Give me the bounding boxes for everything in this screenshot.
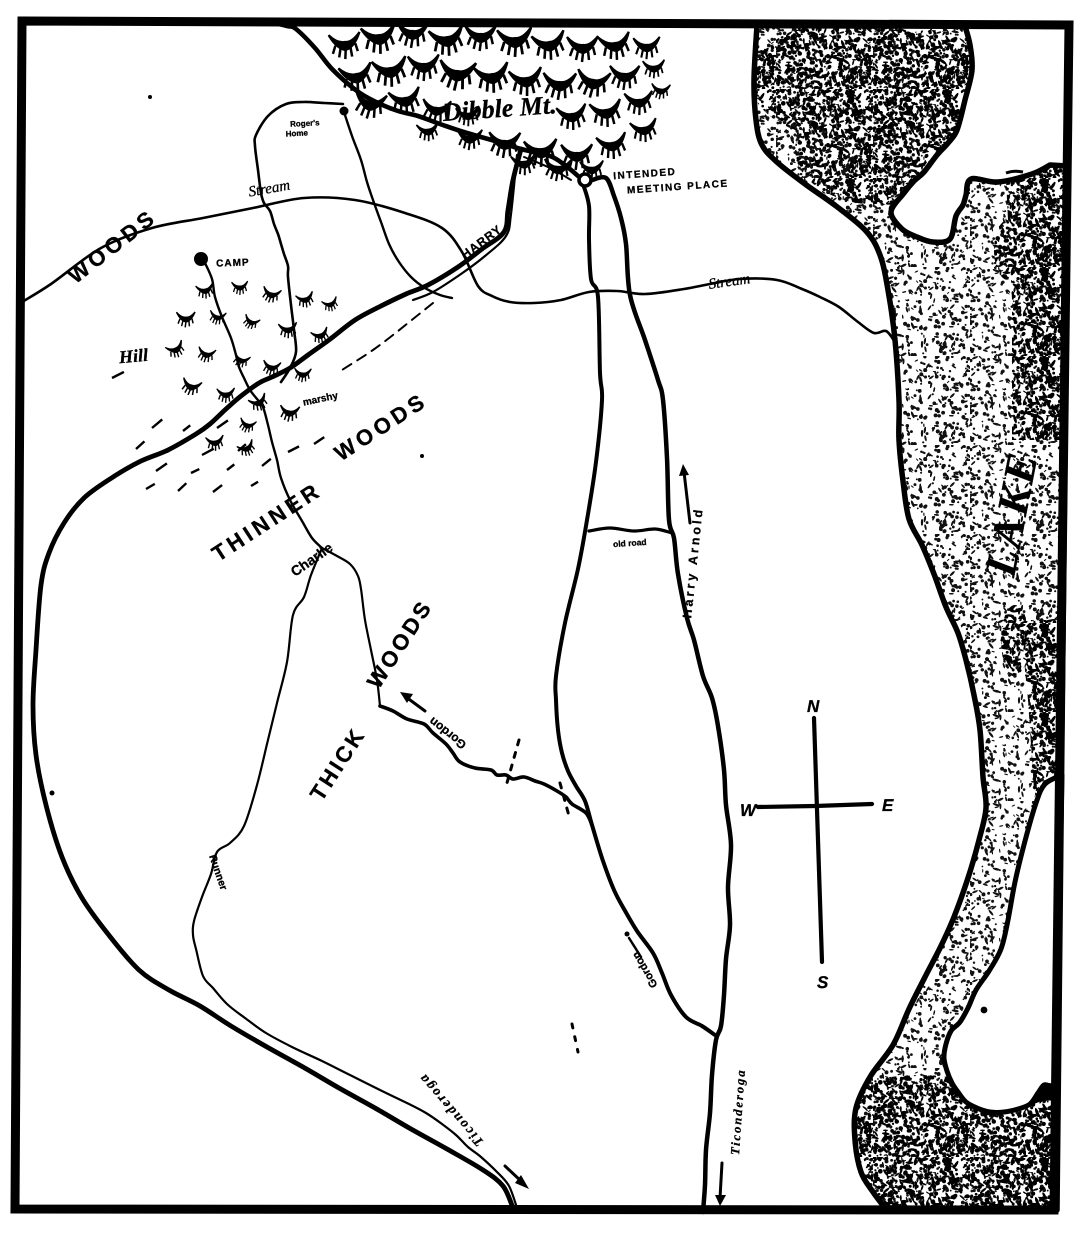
svg-text:N: N [807, 697, 820, 716]
svg-text:E: E [882, 796, 894, 815]
svg-text:CAMP: CAMP [216, 257, 250, 269]
svg-text:Roger's: Roger's [290, 118, 320, 129]
svg-text:W: W [740, 801, 758, 820]
svg-text:S: S [817, 973, 829, 992]
svg-text:Hill: Hill [117, 345, 149, 368]
svg-text:Home: Home [286, 128, 309, 138]
